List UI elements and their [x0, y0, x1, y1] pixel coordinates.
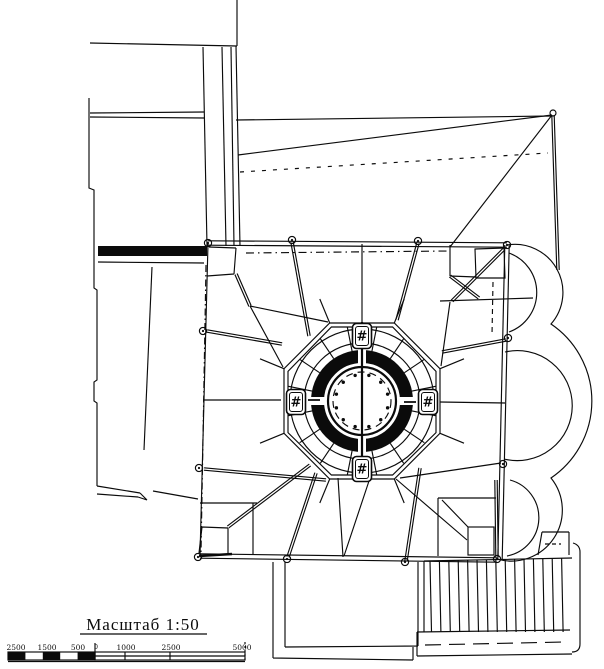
badge-north: #: [353, 324, 372, 349]
porch-outline: [285, 562, 418, 647]
badge-symbol: #: [357, 463, 368, 478]
porch-and-stairs: [273, 532, 580, 660]
ring-gap-east: [399, 397, 414, 405]
ring-gap-west: [310, 397, 325, 405]
apse-lobes: [497, 244, 592, 561]
sw-dormer: [199, 527, 228, 553]
apse-lower-inner-arc: [507, 480, 539, 556]
left-wall-edge: [89, 98, 97, 486]
left-wing: [89, 0, 240, 553]
scale-tick-label: 1500: [37, 643, 56, 652]
scale-tick-label: 2500: [161, 643, 180, 652]
stairs-landing: [417, 630, 572, 656]
architectural-plan-sheet: # # # # Масштаб 1:50: [0, 0, 604, 669]
badge-symbol: #: [357, 330, 368, 345]
scale-bar: Масштаб 1:50 2500 1500 500 0 1000 2500 5…: [6, 615, 251, 662]
wing-gable-point: [97, 486, 198, 500]
scale-tick-label: 500: [71, 643, 86, 652]
stairs-hatch: [430, 558, 563, 632]
scale-tick-label: 1000: [116, 643, 135, 652]
dotted-roof-line: [240, 153, 548, 172]
apse-middle-inner-arc: [504, 351, 572, 461]
scale-caption: Масштаб 1:50: [86, 615, 200, 634]
roof-plan-drawing: # # # # Масштаб 1:50: [0, 0, 604, 669]
apse-outer-outline: [497, 244, 592, 561]
badge-west: #: [287, 390, 306, 415]
thick-wall-band: [98, 246, 207, 256]
northeast-corner-detail: [440, 245, 533, 366]
hip-and-tie-rod-lines: [204, 115, 559, 561]
badge-symbol: #: [291, 396, 302, 411]
porch-step-outline: [273, 562, 413, 660]
upper-roof-planes: [236, 110, 556, 247]
apse-upper-inner-arc: [509, 253, 537, 332]
stairs-outer-edge: [572, 543, 580, 652]
badge-east: #: [419, 390, 438, 415]
badge-symbol: #: [423, 396, 434, 411]
roof-apex-marker: [550, 110, 556, 116]
scale-tick-label: 2500: [6, 643, 25, 652]
badge-south: #: [353, 457, 372, 482]
scale-tick-label: 5000: [232, 643, 251, 652]
